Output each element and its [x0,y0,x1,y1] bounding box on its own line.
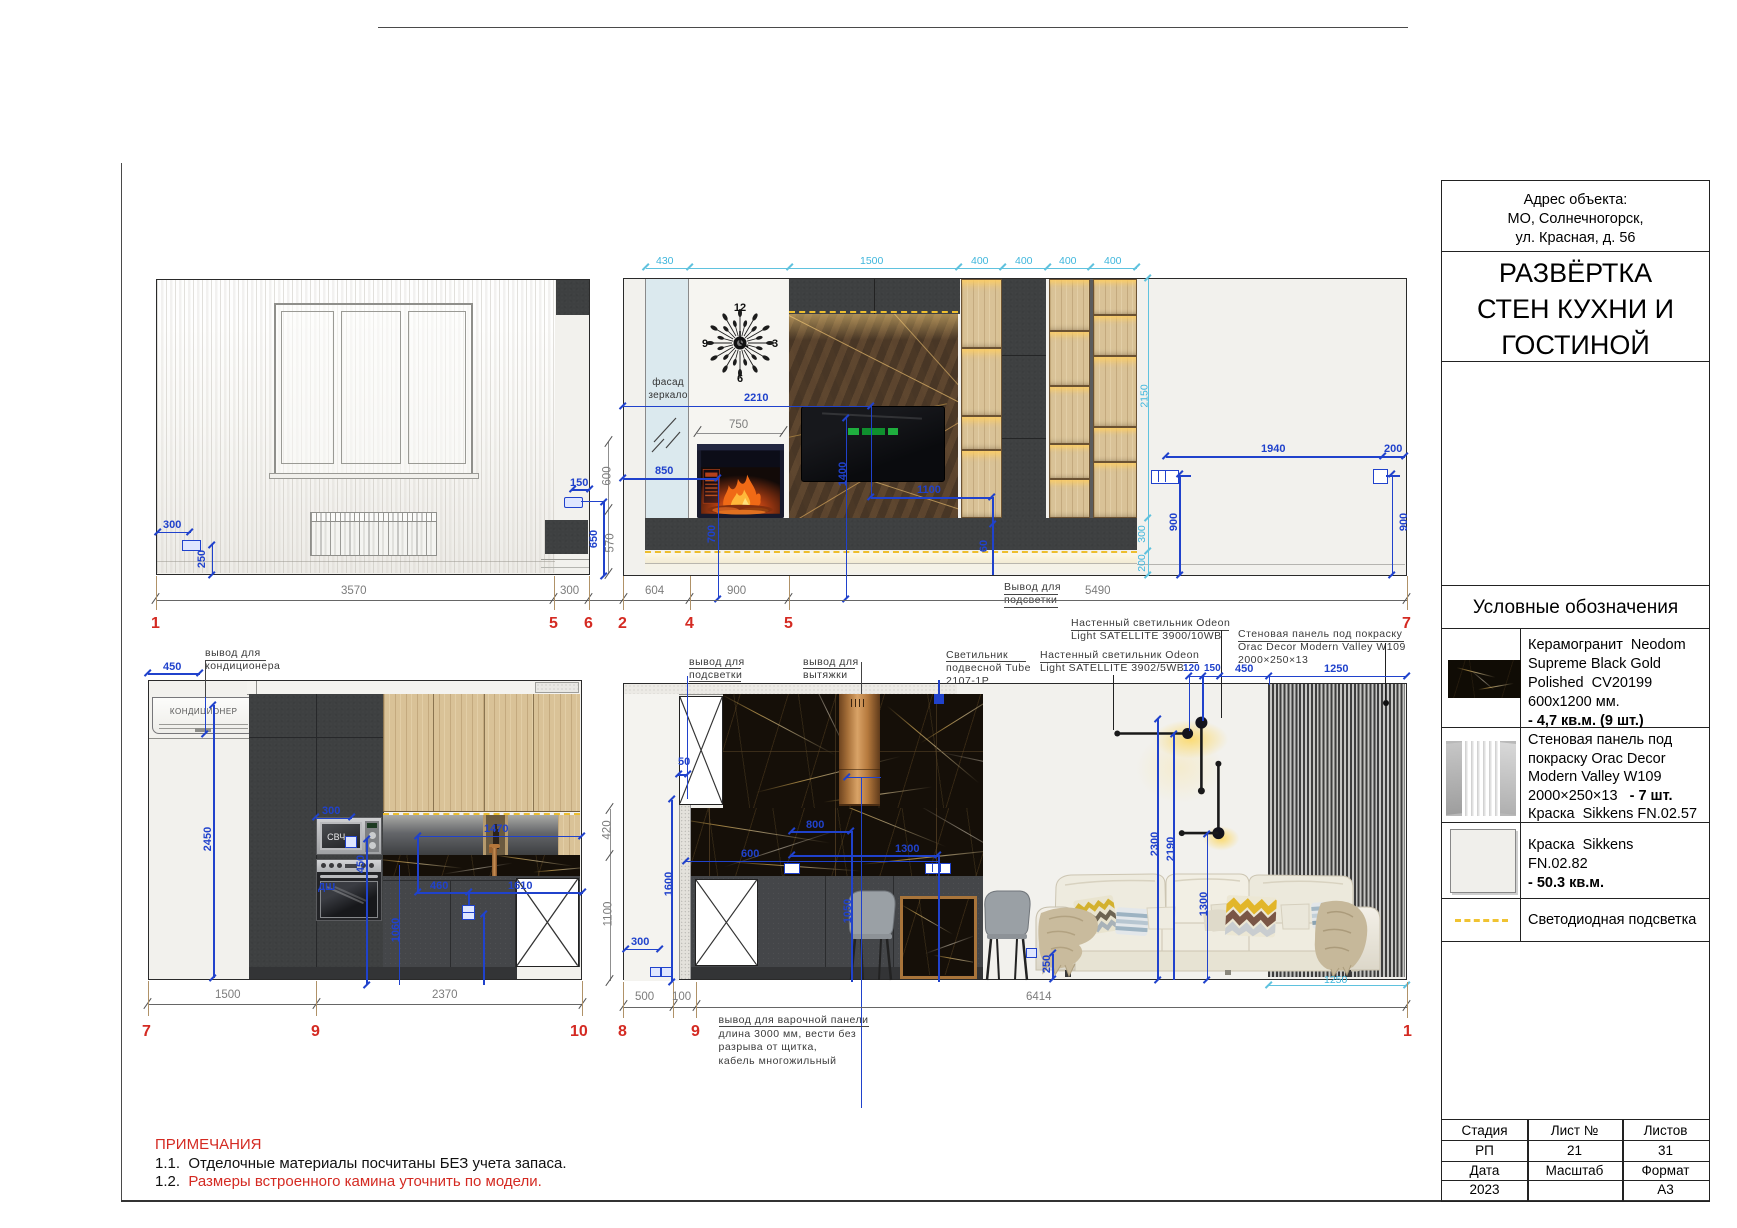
svg-text:6: 6 [737,373,743,383]
svg-text:9: 9 [702,338,708,350]
svg-text:3: 3 [772,338,778,350]
svg-text:12: 12 [734,303,746,314]
